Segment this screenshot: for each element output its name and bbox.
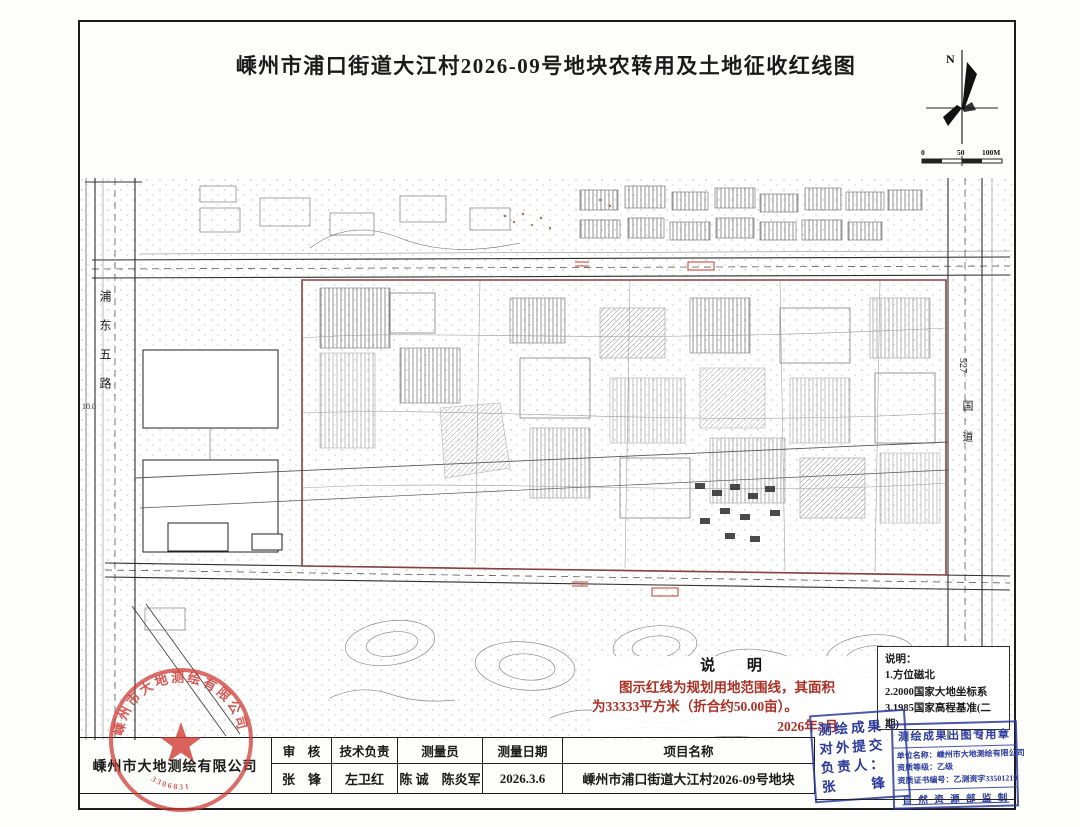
stamp-cert-number: 资质证书编号：乙测资字33501219	[897, 772, 1013, 787]
scale-tick-50: 50	[957, 148, 965, 157]
stamp-cert-title: 测绘成果出图专用章	[893, 722, 1016, 748]
stamp-cert-footer: 自 然 资 源 部 监 制	[895, 787, 1017, 809]
notes-right-heading: 说明：	[885, 652, 1002, 668]
seal-code: 3306831	[150, 774, 191, 791]
bottom-right-divider	[815, 799, 1014, 800]
north-label: N	[946, 52, 955, 66]
value-reviewer: 张 锋	[271, 764, 331, 793]
value-surveyor: 陈 诚 陈炎军	[397, 764, 482, 793]
seal-star-icon	[160, 722, 202, 762]
header-survey-date: 测量日期	[482, 738, 562, 764]
notes-center-heading: 说 明	[592, 656, 884, 678]
notes-center-line1: 图示红线为规划用地范围线，其面积	[592, 678, 884, 698]
road-label-guodao: 国道	[959, 400, 975, 462]
scale-tick-100: 100M	[982, 148, 1000, 157]
value-tech-lead: 左卫红	[331, 764, 397, 793]
header-surveyor: 测量员	[397, 738, 482, 764]
stamp-submit-line4: 张 锋	[821, 772, 902, 797]
company-seal: 嵊州市大地测绘有限公司 3306831	[102, 660, 260, 818]
scale-tick-0: 0	[921, 148, 925, 157]
header-tech-lead: 技术负责	[331, 738, 397, 764]
notes-right-item-2: 2.2000国家大地坐标系	[885, 685, 1002, 701]
notes-right-item-1: 1.方位磁北	[885, 668, 1002, 684]
header-project-name: 项目名称	[562, 738, 814, 764]
scale-bar: 0 50 100M	[916, 146, 1012, 172]
page-title: 嵊州市浦口街道大江村2026-09号地块农转用及土地征收红线图	[78, 50, 1014, 80]
compass-icon: N	[918, 46, 1002, 150]
map-sheet: 嵊州市浦口街道大江村2026-09号地块农转用及土地征收红线图 N 0 50 1…	[0, 0, 1080, 827]
road-number-527: 527	[957, 358, 968, 373]
value-survey-date: 2026.3.6	[482, 764, 562, 793]
value-project-name: 嵊州市浦口街道大江村2026-09号地块	[562, 764, 814, 793]
dimension-label: 10.0	[82, 402, 96, 411]
header-reviewer: 审 核	[271, 738, 331, 764]
road-label-pudong-wulu: 浦东五路	[97, 290, 114, 406]
svg-text:3306831: 3306831	[150, 774, 191, 791]
stamp-certification: 测绘成果出图专用章 单位名称：嵊州市大地测绘有限公司 资质等级：乙级 资质证书编…	[891, 720, 1019, 809]
